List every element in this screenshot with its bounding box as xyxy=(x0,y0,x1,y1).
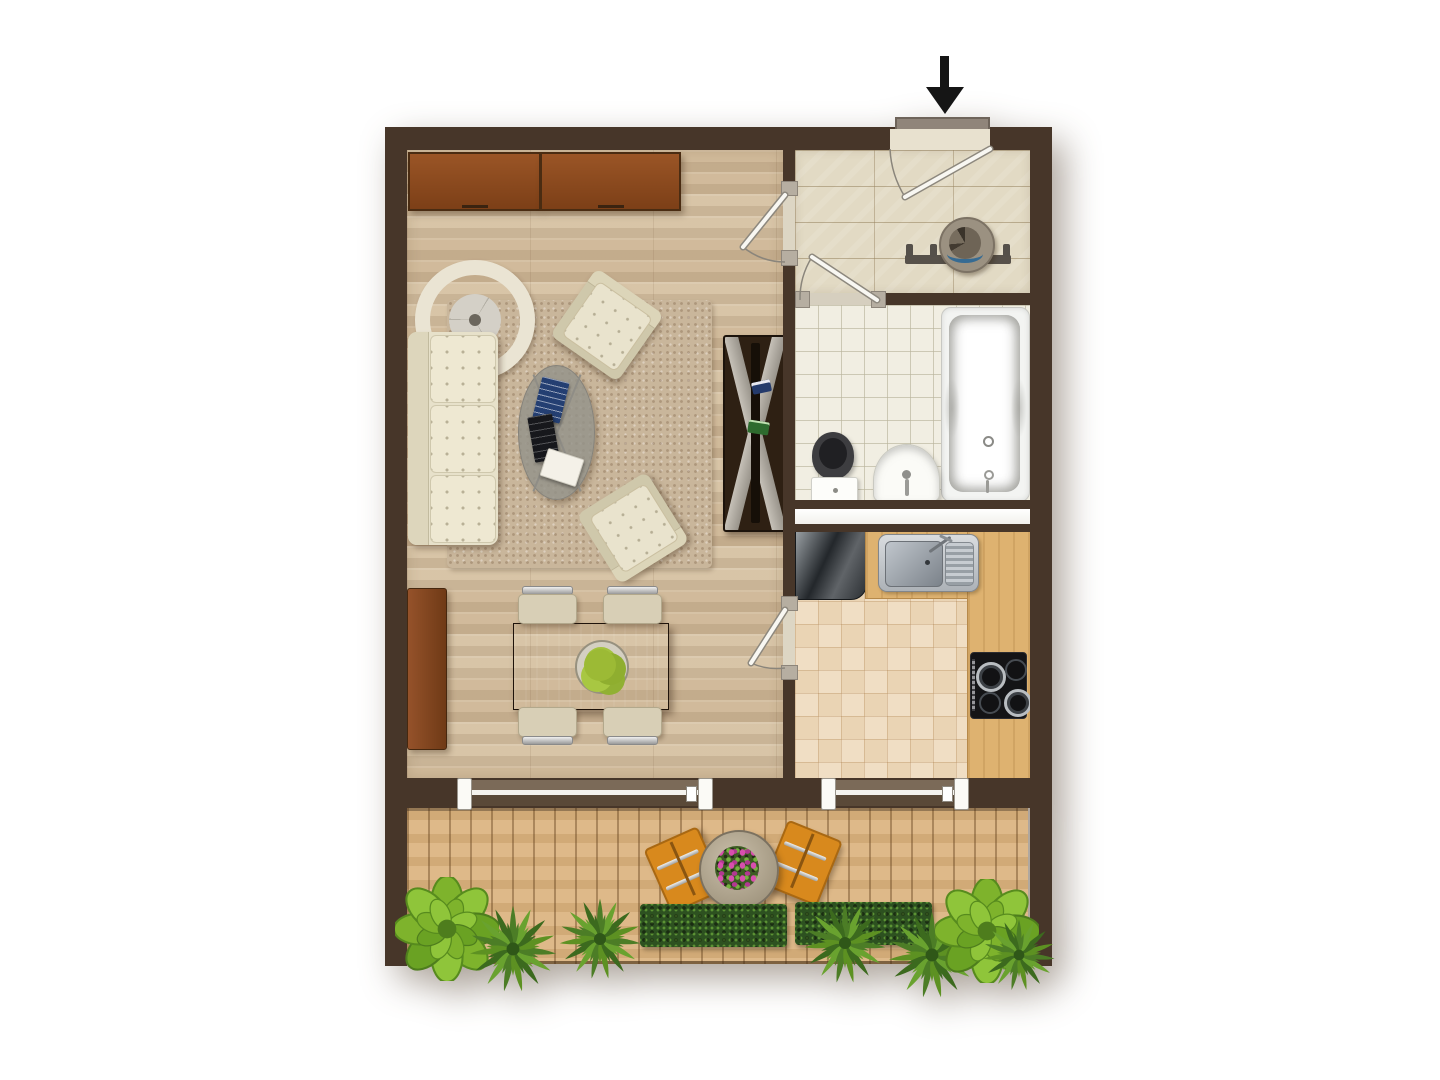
tub-drain xyxy=(983,436,994,447)
kitchen-door xyxy=(730,597,800,687)
sideboard xyxy=(540,152,681,211)
toilet-seat xyxy=(819,438,847,469)
tub-faucet-handle xyxy=(986,480,989,493)
hedge xyxy=(640,904,787,947)
chair-seat xyxy=(603,707,662,737)
flower-pot xyxy=(715,846,759,890)
burner xyxy=(979,692,1001,714)
sliding-door-kitchen xyxy=(822,780,968,806)
spiky-plant xyxy=(557,896,643,982)
sofa-cushion xyxy=(430,335,496,403)
cooktop xyxy=(970,652,1027,719)
door-frame xyxy=(954,778,969,810)
spiky-plant xyxy=(467,903,559,995)
basin-faucet xyxy=(902,470,911,479)
tub-shading xyxy=(1011,378,1027,438)
burner xyxy=(976,662,1006,692)
door-frame xyxy=(821,778,836,810)
chair-seat xyxy=(518,594,577,624)
coat-hook xyxy=(1003,244,1010,257)
chair-back xyxy=(607,736,658,745)
dining-chair xyxy=(518,707,575,745)
bathroom-door xyxy=(790,242,885,307)
clock-center xyxy=(469,314,481,326)
sofa xyxy=(408,332,498,545)
coat-hook xyxy=(906,244,913,257)
tub-shading xyxy=(944,378,960,438)
sofa-cushion xyxy=(430,475,496,543)
sofa-cushion xyxy=(430,405,496,473)
tub-faucet xyxy=(984,470,994,480)
door-handle xyxy=(686,786,697,802)
coat-hook xyxy=(930,244,937,257)
kitchen-sink xyxy=(878,534,979,592)
chair-frame xyxy=(790,833,815,888)
basin-spout xyxy=(905,479,909,496)
sideboard xyxy=(408,152,541,211)
entrance-arrow-head xyxy=(926,87,964,114)
balcony-table xyxy=(699,830,779,910)
door-frame xyxy=(457,778,472,810)
dining-chair xyxy=(603,586,660,624)
sliding-door-living xyxy=(458,780,712,806)
fruit-bowl xyxy=(575,640,629,694)
sofa-backrest xyxy=(408,332,429,545)
service-shaft xyxy=(795,509,1030,524)
sink-drainer xyxy=(945,542,974,586)
wall-shaft-kitchen xyxy=(795,524,1030,532)
bathtub xyxy=(941,307,1030,502)
spiky-plant xyxy=(802,900,888,986)
entrance-arrow xyxy=(940,56,949,89)
entry-door xyxy=(880,140,1000,230)
wall-left xyxy=(385,127,407,966)
wall-right xyxy=(1030,127,1052,966)
refrigerator xyxy=(795,530,867,600)
toilet xyxy=(812,432,854,479)
chair-seat xyxy=(518,707,577,737)
chair-back xyxy=(522,736,573,745)
hat-band xyxy=(947,245,983,263)
spiky-plant xyxy=(981,917,1057,993)
burner xyxy=(1005,659,1027,681)
dining-chair xyxy=(518,586,575,624)
chair-seat xyxy=(603,594,662,624)
door-frame xyxy=(698,778,713,810)
burner xyxy=(1004,689,1032,717)
floor-plan xyxy=(385,127,1052,966)
apples xyxy=(584,649,616,681)
tv-rack xyxy=(723,335,787,532)
wall-bath-shaft xyxy=(795,500,1030,509)
dining-chair xyxy=(603,707,660,745)
lowboard xyxy=(407,588,447,750)
living-room-door xyxy=(725,182,795,272)
cooktop-controls xyxy=(972,659,975,711)
door-handle xyxy=(942,786,953,802)
